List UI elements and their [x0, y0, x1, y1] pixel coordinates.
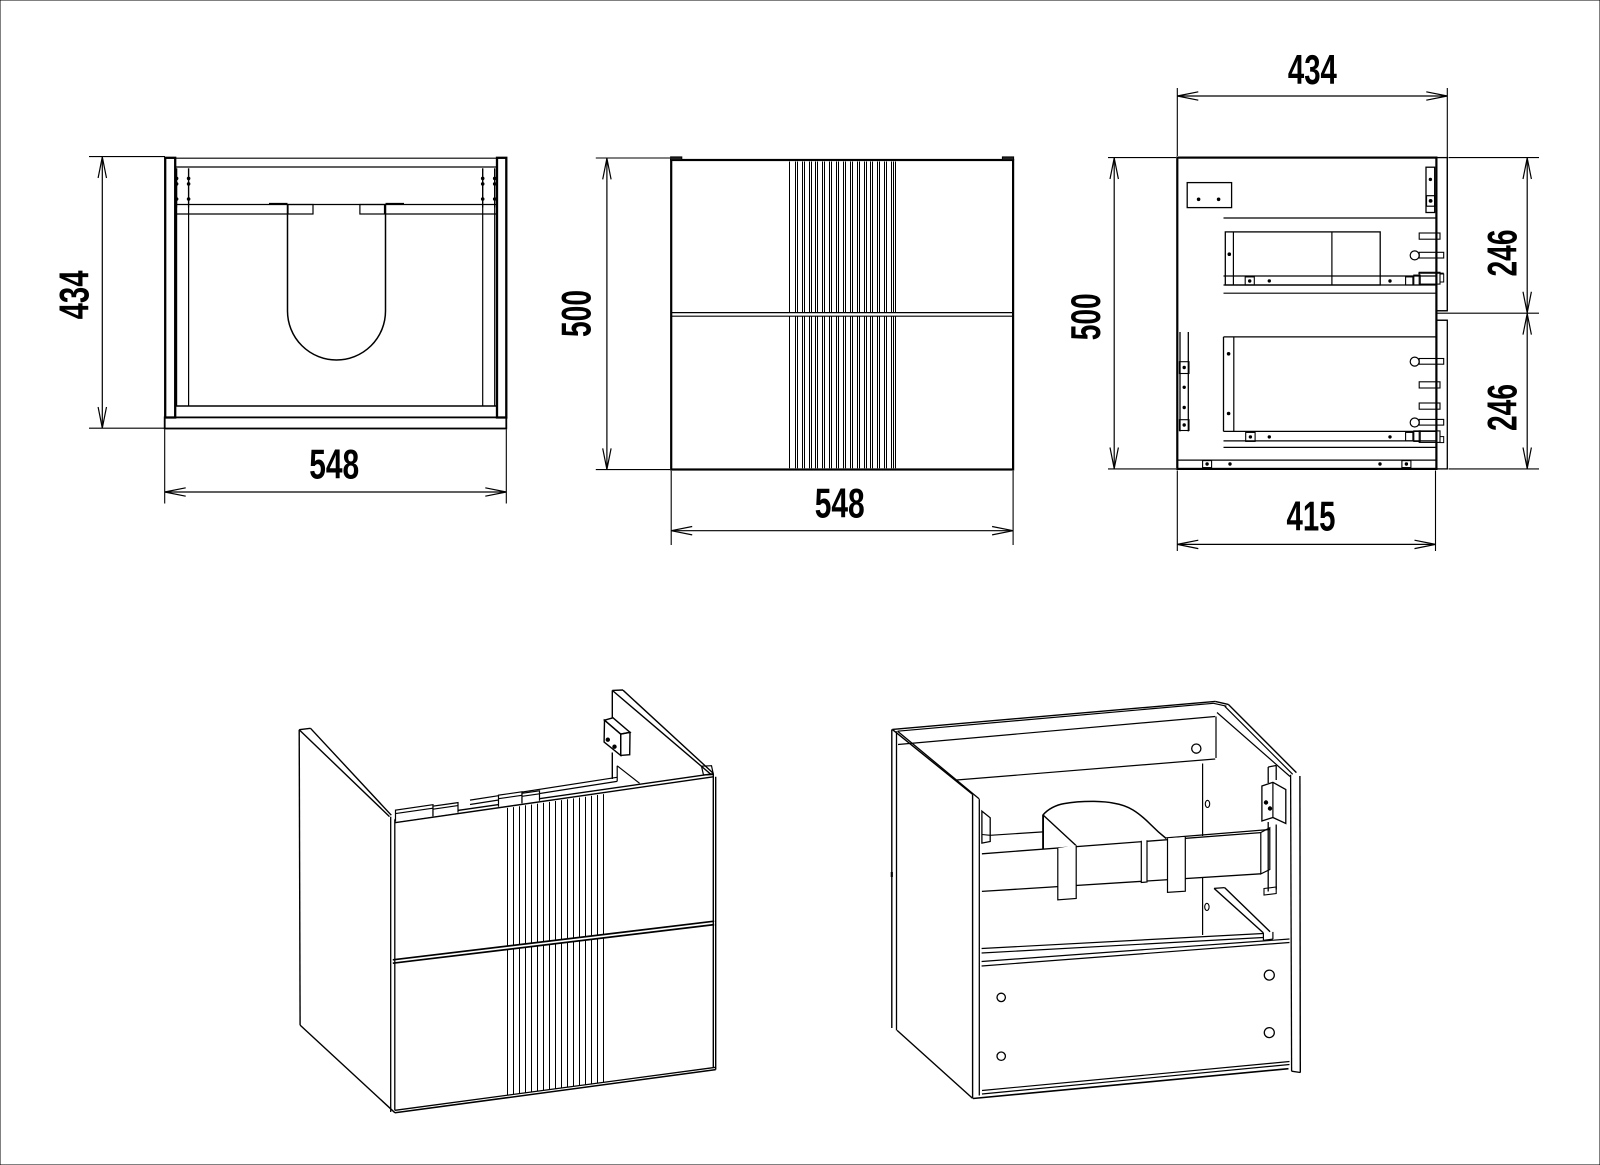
svg-text:415: 415	[1287, 493, 1336, 540]
svg-text:500: 500	[1062, 293, 1109, 340]
svg-text:434: 434	[1288, 46, 1337, 93]
svg-text:246: 246	[1479, 230, 1526, 277]
svg-text:246: 246	[1479, 384, 1526, 431]
svg-text:548: 548	[309, 441, 359, 488]
svg-text:434: 434	[51, 270, 98, 319]
svg-text:500: 500	[552, 290, 599, 337]
svg-text:548: 548	[815, 480, 865, 527]
